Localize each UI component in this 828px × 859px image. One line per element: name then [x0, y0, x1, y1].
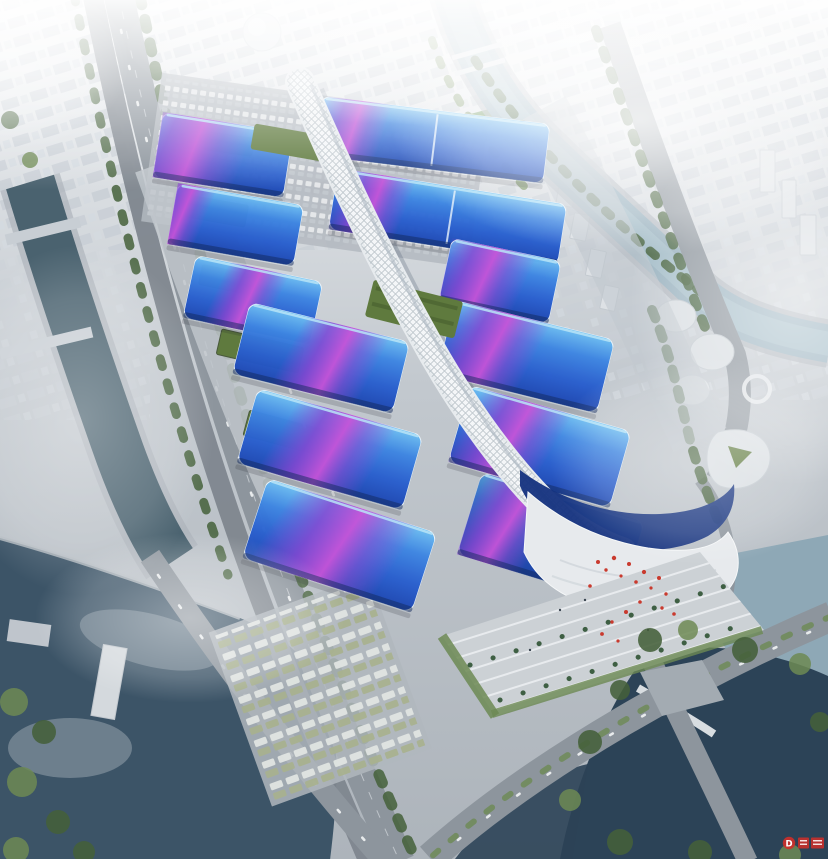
watermark-letter: D — [785, 840, 792, 850]
watermark-logo: D — [783, 837, 824, 850]
scene-canvas: D — [0, 0, 828, 859]
aerial-rendering: D — [0, 0, 828, 859]
